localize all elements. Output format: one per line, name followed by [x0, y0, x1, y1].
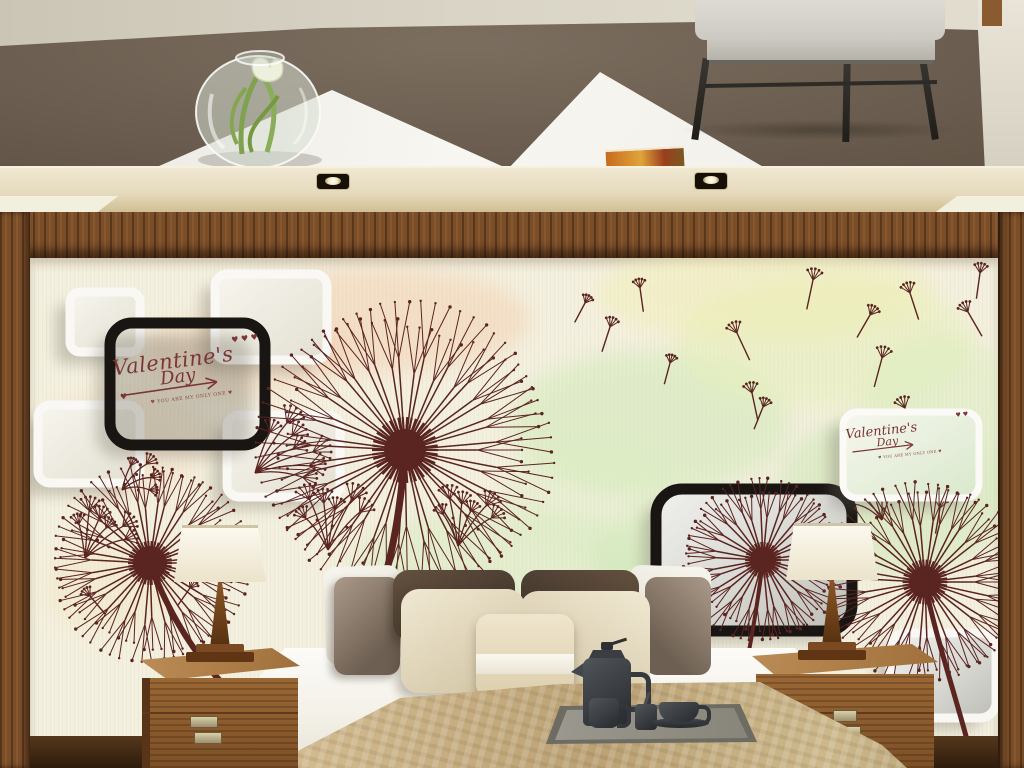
lamp-column	[818, 580, 846, 646]
drawer-handle	[833, 710, 857, 722]
coffee-pot-knob	[601, 642, 613, 650]
creamer	[589, 698, 619, 728]
recessed-spotlight	[316, 173, 350, 190]
lamp-shade	[172, 524, 268, 584]
valentine-day-lettering: Valentine's Day ♥ ♥ ♥ ♥ ♥ YOU ARE MY ONL…	[111, 339, 271, 445]
chaise-bench	[685, 0, 960, 150]
valentine-card-lettering: Valentine's Day ♥ ♥ ♥ YOU ARE MY ONLY ON…	[845, 416, 975, 493]
drawer-divider	[142, 712, 298, 714]
pillow-taupe-left	[334, 577, 400, 675]
heart-doodles: ♥ ♥	[955, 411, 968, 419]
drawer-handle	[190, 716, 218, 728]
chaise-shadow	[680, 120, 960, 140]
wood-frame-right	[998, 212, 1024, 768]
nightstand-front	[142, 678, 298, 768]
sugar-bowl	[635, 704, 657, 730]
wood-wall-strip	[982, 0, 1002, 26]
coffee-cup	[659, 702, 699, 722]
lamp-shade-rim	[794, 523, 870, 526]
living-room-scene	[0, 0, 1024, 172]
chaise-cushion	[695, 0, 945, 40]
glass-vase-with-calla-lilies	[182, 44, 334, 172]
lamp-column	[206, 582, 234, 648]
wood-paneling-top	[0, 212, 1024, 258]
nightstand-left	[134, 646, 302, 768]
creamer-handle	[617, 704, 631, 728]
bedroom-mural-mockup-photo: Valentine's Day ♥ ♥ ♥ ♥ ♥ YOU ARE MY ONL…	[0, 0, 1024, 768]
table-lamp-left	[172, 524, 268, 664]
chaise-leg	[842, 60, 850, 142]
ceiling-ledge	[0, 166, 1024, 196]
drawer-handle	[194, 732, 222, 744]
coffee-tray-set	[545, 640, 760, 752]
lamp-shade	[784, 522, 880, 582]
chaise-rail	[705, 80, 937, 88]
wood-frame-left	[0, 212, 30, 768]
lamp-shade-rim	[182, 525, 258, 528]
lamp-base	[186, 652, 254, 662]
recessed-spotlight	[694, 172, 728, 190]
nightstand-side	[142, 678, 150, 768]
table-lamp-right	[784, 522, 880, 662]
svg-text:♥: ♥	[120, 392, 128, 402]
cup-handle	[697, 705, 711, 725]
ceiling-ledge-lower-step	[95, 194, 960, 214]
tray	[545, 640, 760, 752]
lamp-base	[798, 650, 866, 660]
